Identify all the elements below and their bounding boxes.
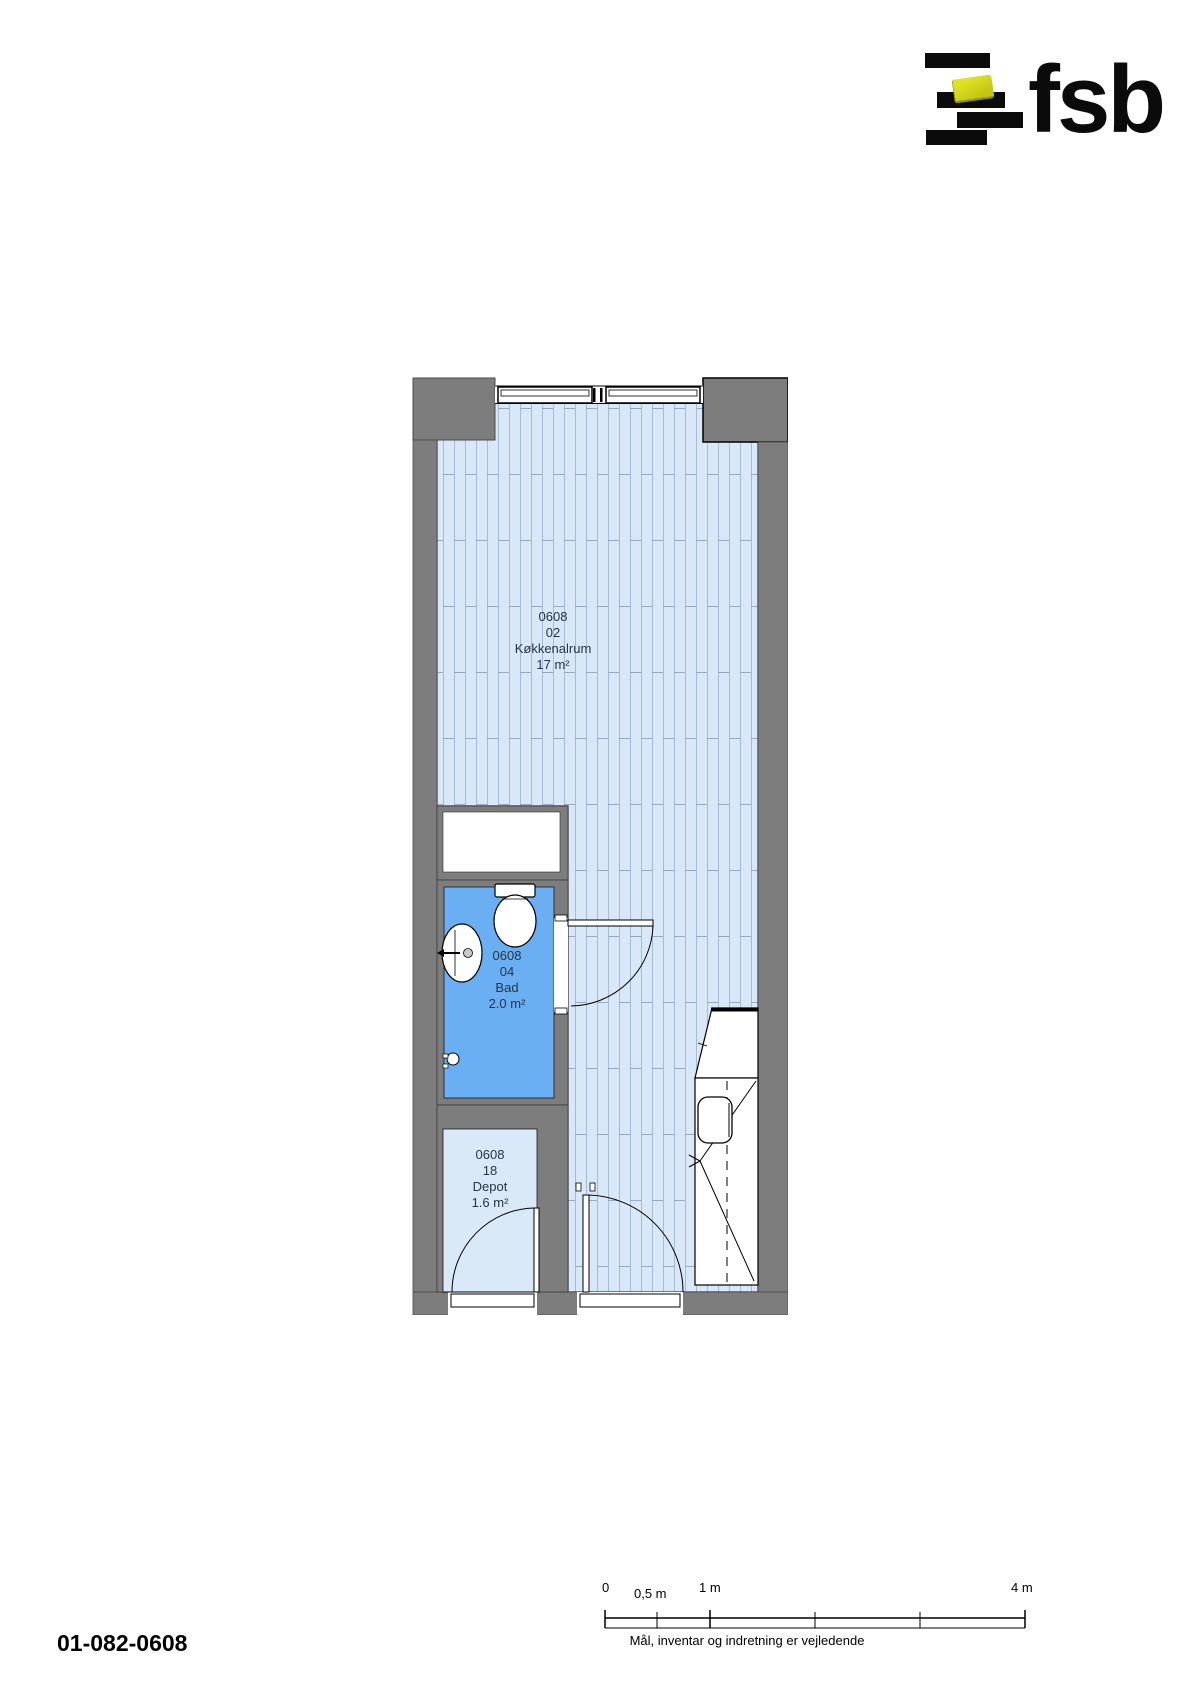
room-name: Køkkenalrum [515,641,592,656]
room-name: Bad [495,980,518,995]
room-id: 0608 [539,609,568,624]
wall-top-right-block [703,378,788,442]
room-area: 17 m² [536,657,570,672]
entry-door-leaf [583,1195,589,1292]
chair-icon [698,1097,732,1143]
scale-disclaimer: Mål, inventar og indretning er vejledend… [630,1633,865,1648]
logo-brick-black-4 [926,130,987,145]
scale-label-0: 0 [602,1580,609,1595]
window-1 [498,387,592,403]
scale-bar-rule [605,1610,1025,1628]
room-name: Depot [473,1179,508,1194]
window-mullion [593,388,596,402]
closet [437,806,568,880]
room-area: 1.6 m² [472,1195,510,1210]
logo-brick-black-3 [957,112,1023,128]
depot-entry-threshold [451,1294,534,1307]
room-area: 2.0 m² [489,996,527,1011]
depot-door-leaf [534,1208,539,1292]
fsb-logo: fsb [920,48,1200,158]
scale-label-1m: 1 m [699,1580,721,1595]
wall-top-left-block [413,378,495,440]
room-id: 0608 [476,1147,505,1162]
room-label-depot: 0608 18 Depot 1.6 m² [472,1147,510,1210]
window-2 [606,387,700,403]
room-number: 18 [483,1163,497,1178]
floor-plan: 0608 02 Køkkenalrum 17 m² 0608 04 Bad 2.… [410,375,788,1315]
bathroom-door-leaf [568,920,653,926]
scale-bar: 0 0,5 m 1 m 4 m Mål, inventar og indretn… [598,1576,1058,1652]
window-mullion [600,388,603,402]
room-id: 0608 [493,948,522,963]
drawing-number: 01-082-0608 [57,1630,187,1657]
wall-left [413,440,437,1292]
scale-label-4m: 4 m [1011,1580,1033,1595]
logo-brand-text: fsb [1028,50,1163,151]
main-entry-threshold [580,1294,680,1307]
logo-brick-black-1 [925,53,990,68]
toilet-icon [494,884,536,947]
room-number: 02 [546,625,560,640]
windows [495,385,703,404]
scale-label-05m: 0,5 m [634,1586,667,1601]
wall-right [758,442,788,1292]
room-number: 04 [500,964,514,979]
